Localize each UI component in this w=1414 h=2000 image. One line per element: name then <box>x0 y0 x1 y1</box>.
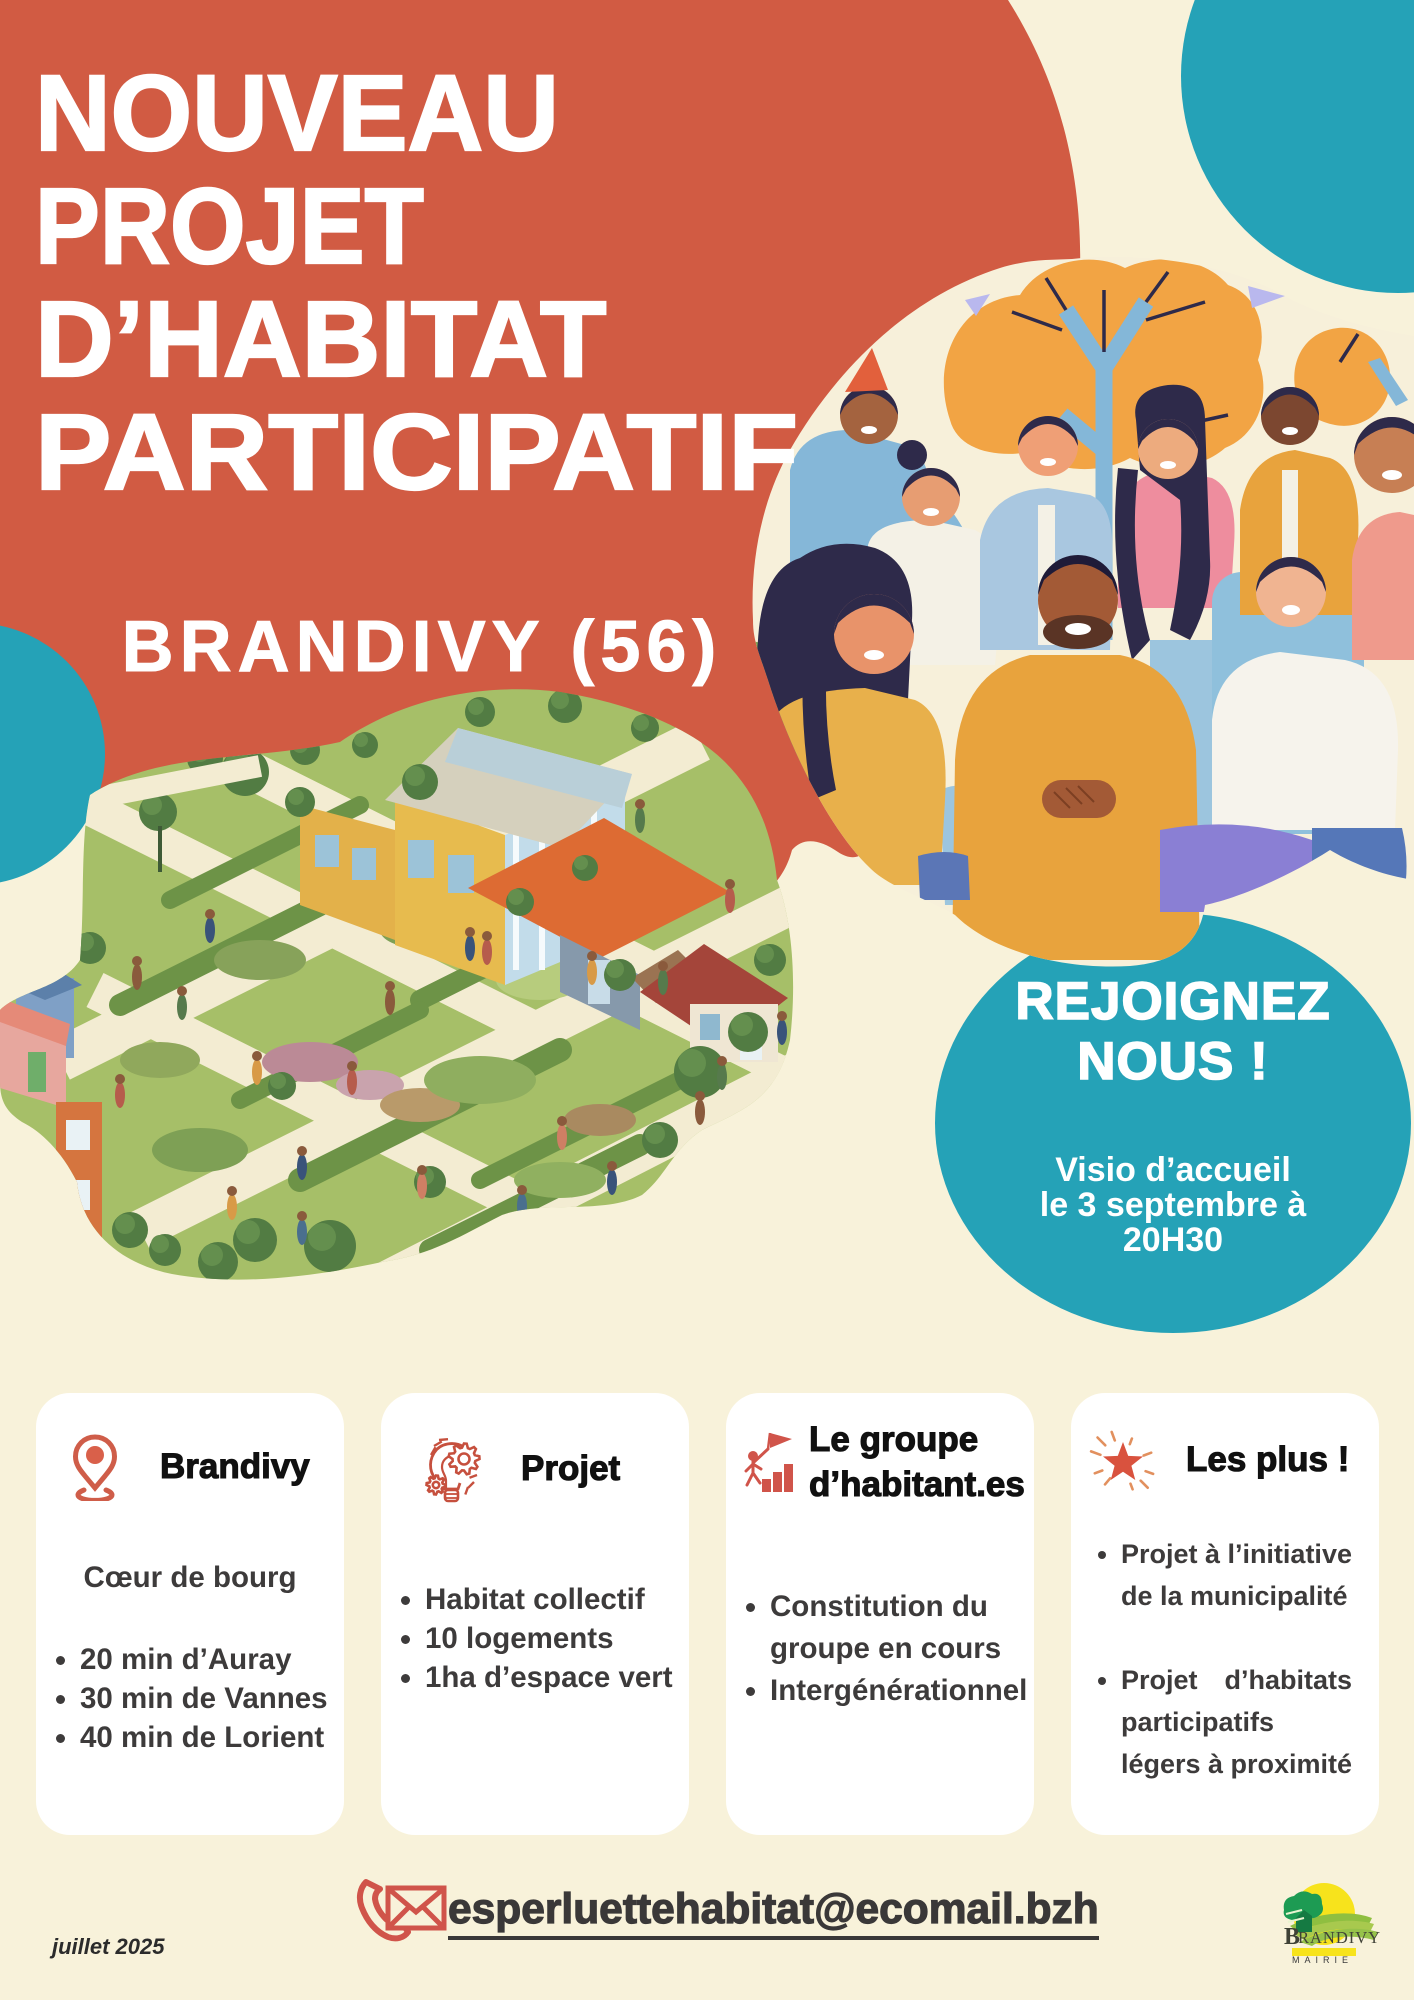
svg-text:MAIRIE: MAIRIE <box>1292 1955 1353 1965</box>
svg-text:RANDIVY: RANDIVY <box>1298 1928 1381 1947</box>
